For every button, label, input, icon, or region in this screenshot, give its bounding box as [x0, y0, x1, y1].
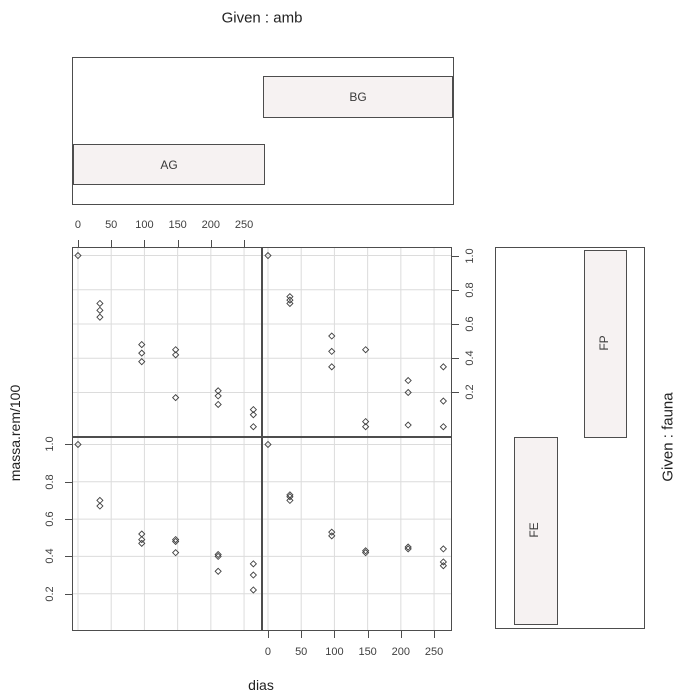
top-axis-tick-label: 50	[105, 219, 117, 231]
left-axis-tick	[65, 556, 72, 557]
bottom-axis-tick	[301, 631, 302, 638]
panel-border	[73, 248, 262, 437]
data-point-diamond	[250, 587, 256, 593]
data-point-diamond	[329, 529, 335, 535]
given-amb-bar-ag: AG	[73, 144, 265, 185]
data-point-diamond	[405, 422, 411, 428]
bottom-axis-tick	[434, 631, 435, 638]
data-point-diamond	[250, 572, 256, 578]
data-point-diamond	[215, 568, 221, 574]
bottom-axis-tick	[334, 631, 335, 638]
panel-top-left	[72, 247, 262, 437]
right-axis-tick	[452, 290, 459, 291]
given-amb-title: Given : amb	[222, 10, 303, 27]
given-amb-panel: BG AG	[72, 57, 454, 205]
data-point-diamond	[329, 348, 335, 354]
data-point-diamond	[329, 333, 335, 339]
left-axis-tick-label: 1.0	[44, 437, 56, 452]
right-axis-tick	[452, 392, 459, 393]
data-point-diamond	[405, 546, 411, 552]
panel-border	[73, 438, 262, 631]
data-point-diamond	[440, 398, 446, 404]
bottom-axis-tick-label: 50	[295, 646, 307, 658]
top-axis-tick	[211, 240, 212, 247]
left-axis-tick	[65, 482, 72, 483]
data-point-diamond	[329, 533, 335, 539]
data-point-diamond	[440, 563, 446, 569]
bottom-axis-tick-label: 150	[358, 646, 376, 658]
data-point-diamond	[139, 540, 145, 546]
right-axis-tick	[452, 256, 459, 257]
top-axis-tick-label: 0	[75, 219, 81, 231]
given-fauna-bar-fe-label: FE	[527, 522, 541, 537]
data-point-diamond	[97, 300, 103, 306]
left-axis-tick-label: 0.4	[44, 549, 56, 564]
left-axis-tick-label: 0.8	[44, 474, 56, 489]
given-amb-bar-bg-label: BG	[349, 90, 366, 104]
data-point-diamond	[139, 350, 145, 356]
left-axis-tick	[65, 444, 72, 445]
x-axis-title: dias	[248, 677, 274, 693]
panel-bottom-left	[72, 437, 262, 631]
bottom-axis-tick-label: 250	[425, 646, 443, 658]
bottom-axis-tick-label: 0	[265, 646, 271, 658]
top-axis-tick	[111, 240, 112, 247]
data-point-diamond	[287, 494, 293, 500]
left-axis-tick	[65, 594, 72, 595]
top-axis-tick-label: 100	[135, 219, 153, 231]
data-point-diamond	[440, 364, 446, 370]
right-axis-tick-label: 1.0	[464, 248, 476, 263]
bottom-axis-tick	[401, 631, 402, 638]
data-point-diamond	[250, 424, 256, 430]
data-point-diamond	[405, 378, 411, 384]
panel-border	[263, 248, 452, 437]
given-amb-bar-bg: BG	[263, 76, 453, 118]
panel-border	[263, 438, 452, 631]
scatter-panels	[72, 247, 452, 631]
bottom-axis-tick	[368, 631, 369, 638]
left-axis-tick-label: 0.6	[44, 511, 56, 526]
given-fauna-bar-fp-label: FP	[597, 335, 611, 350]
data-point-diamond	[139, 359, 145, 365]
top-axis-tick-label: 250	[235, 219, 253, 231]
panel-top-right	[262, 247, 452, 437]
top-axis-tick	[244, 240, 245, 247]
data-point-diamond	[405, 544, 411, 550]
given-amb-bar-ag-label: AG	[160, 158, 177, 172]
data-point-diamond	[215, 401, 221, 407]
bottom-axis-tick-label: 100	[325, 646, 343, 658]
left-axis-tick	[65, 519, 72, 520]
bottom-axis-tick-label: 200	[392, 646, 410, 658]
coplot-figure: Given : amb BG AG 050100150200250 050100…	[0, 0, 700, 699]
right-axis-tick-label: 0.2	[464, 385, 476, 400]
right-axis-tick-label: 0.6	[464, 316, 476, 331]
bottom-axis-tick	[268, 631, 269, 638]
top-axis-tick-label: 150	[168, 219, 186, 231]
given-fauna-title: Given : fauna	[660, 392, 677, 481]
right-axis-tick	[452, 358, 459, 359]
left-axis-tick-label: 0.2	[44, 586, 56, 601]
right-axis-tick	[452, 324, 459, 325]
right-axis-tick-label: 0.8	[464, 282, 476, 297]
top-axis-tick	[144, 240, 145, 247]
top-axis-tick-label: 200	[202, 219, 220, 231]
right-axis-tick-label: 0.4	[464, 351, 476, 366]
panel-bottom-right	[262, 437, 452, 631]
given-fauna-panel	[495, 247, 645, 629]
data-point-diamond	[440, 424, 446, 430]
data-point-diamond	[329, 364, 335, 370]
top-axis-tick	[178, 240, 179, 247]
data-point-diamond	[97, 314, 103, 320]
data-point-diamond	[250, 561, 256, 567]
data-point-diamond	[97, 307, 103, 313]
data-point-diamond	[440, 546, 446, 552]
top-axis-tick	[78, 240, 79, 247]
data-point-diamond	[139, 342, 145, 348]
data-point-diamond	[440, 559, 446, 565]
y-axis-title: massa.rem/100	[7, 385, 23, 481]
